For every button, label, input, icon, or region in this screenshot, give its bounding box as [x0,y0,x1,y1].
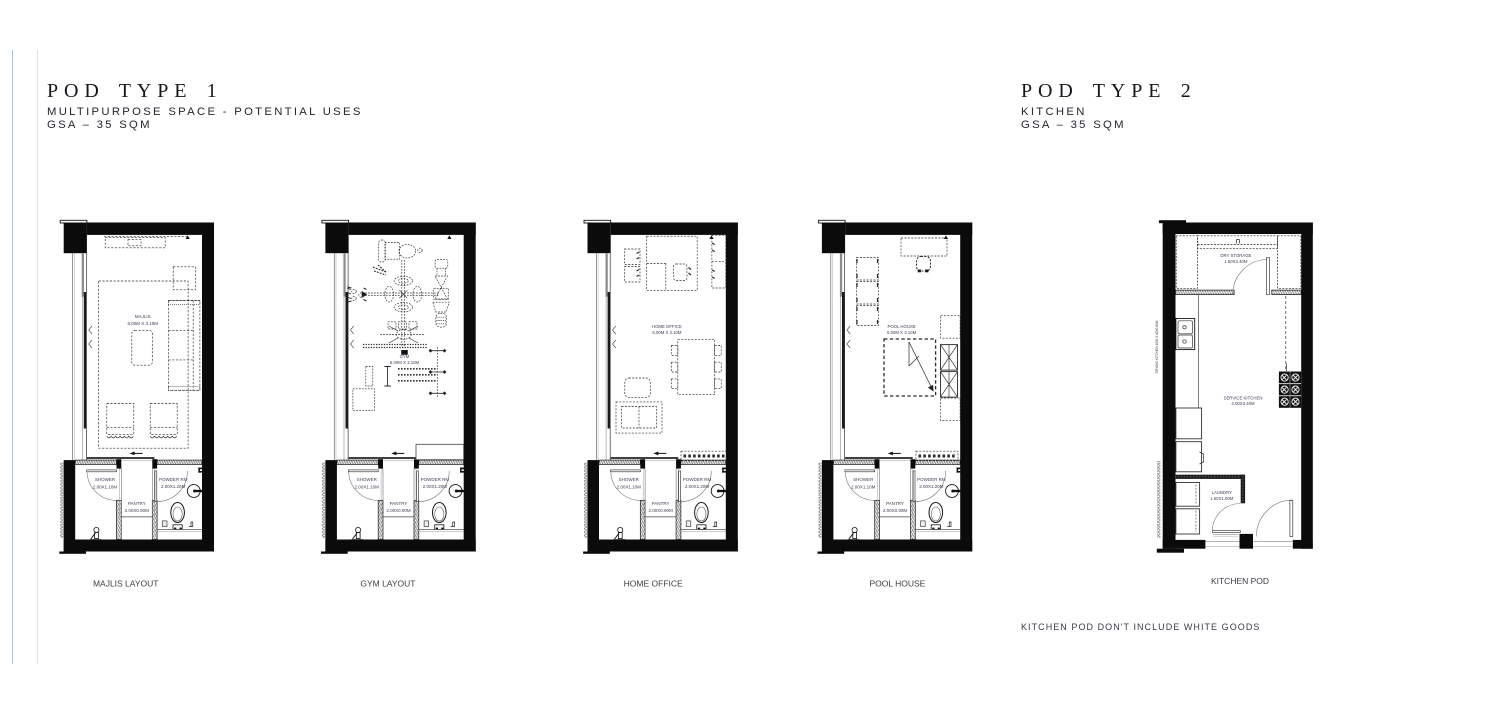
svg-text:6.00M X 3.10M: 6.00M X 3.10M [652,330,682,335]
svg-text:POOL HOUSE: POOL HOUSE [887,324,915,329]
svg-text:6.00M X 3.10M: 6.00M X 3.10M [128,321,159,326]
svg-text:1.50X3.40M: 1.50X3.40M [1224,259,1248,264]
svg-text:GYM: GYM [400,354,410,359]
svg-text:DRYING KITCHEN W/M 3.40X0.60M: DRYING KITCHEN W/M 3.40X0.60M [1155,320,1159,373]
svg-text:6.00M X 3.10M: 6.00M X 3.10M [887,330,917,335]
svg-text:GYM LAYOUT: GYM LAYOUT [360,579,415,589]
svg-text:MAJLIS: MAJLIS [135,314,151,319]
svg-text:6.00M X 3.10M: 6.00M X 3.10M [390,360,420,365]
svg-text:HOME OFFICE: HOME OFFICE [652,324,682,329]
svg-text:MAJLIS LAYOUT: MAJLIS LAYOUT [93,579,159,589]
svg-text:POOL HOUSE: POOL HOUSE [869,579,925,589]
svg-text:KITCHEN POD: KITCHEN POD [1211,576,1269,586]
svg-text:4.00X3.40M: 4.00X3.40M [1231,401,1255,406]
svg-text:DRY STORAGE: DRY STORAGE [1220,253,1251,258]
svg-text:HOME OFFICE: HOME OFFICE [624,579,683,589]
svg-text:LAUNDRY: LAUNDRY [1212,490,1233,495]
svg-text:1.60X1.00M: 1.60X1.00M [1210,496,1234,501]
svg-text:SERVICE KITCHEN: SERVICE KITCHEN [1224,395,1263,400]
